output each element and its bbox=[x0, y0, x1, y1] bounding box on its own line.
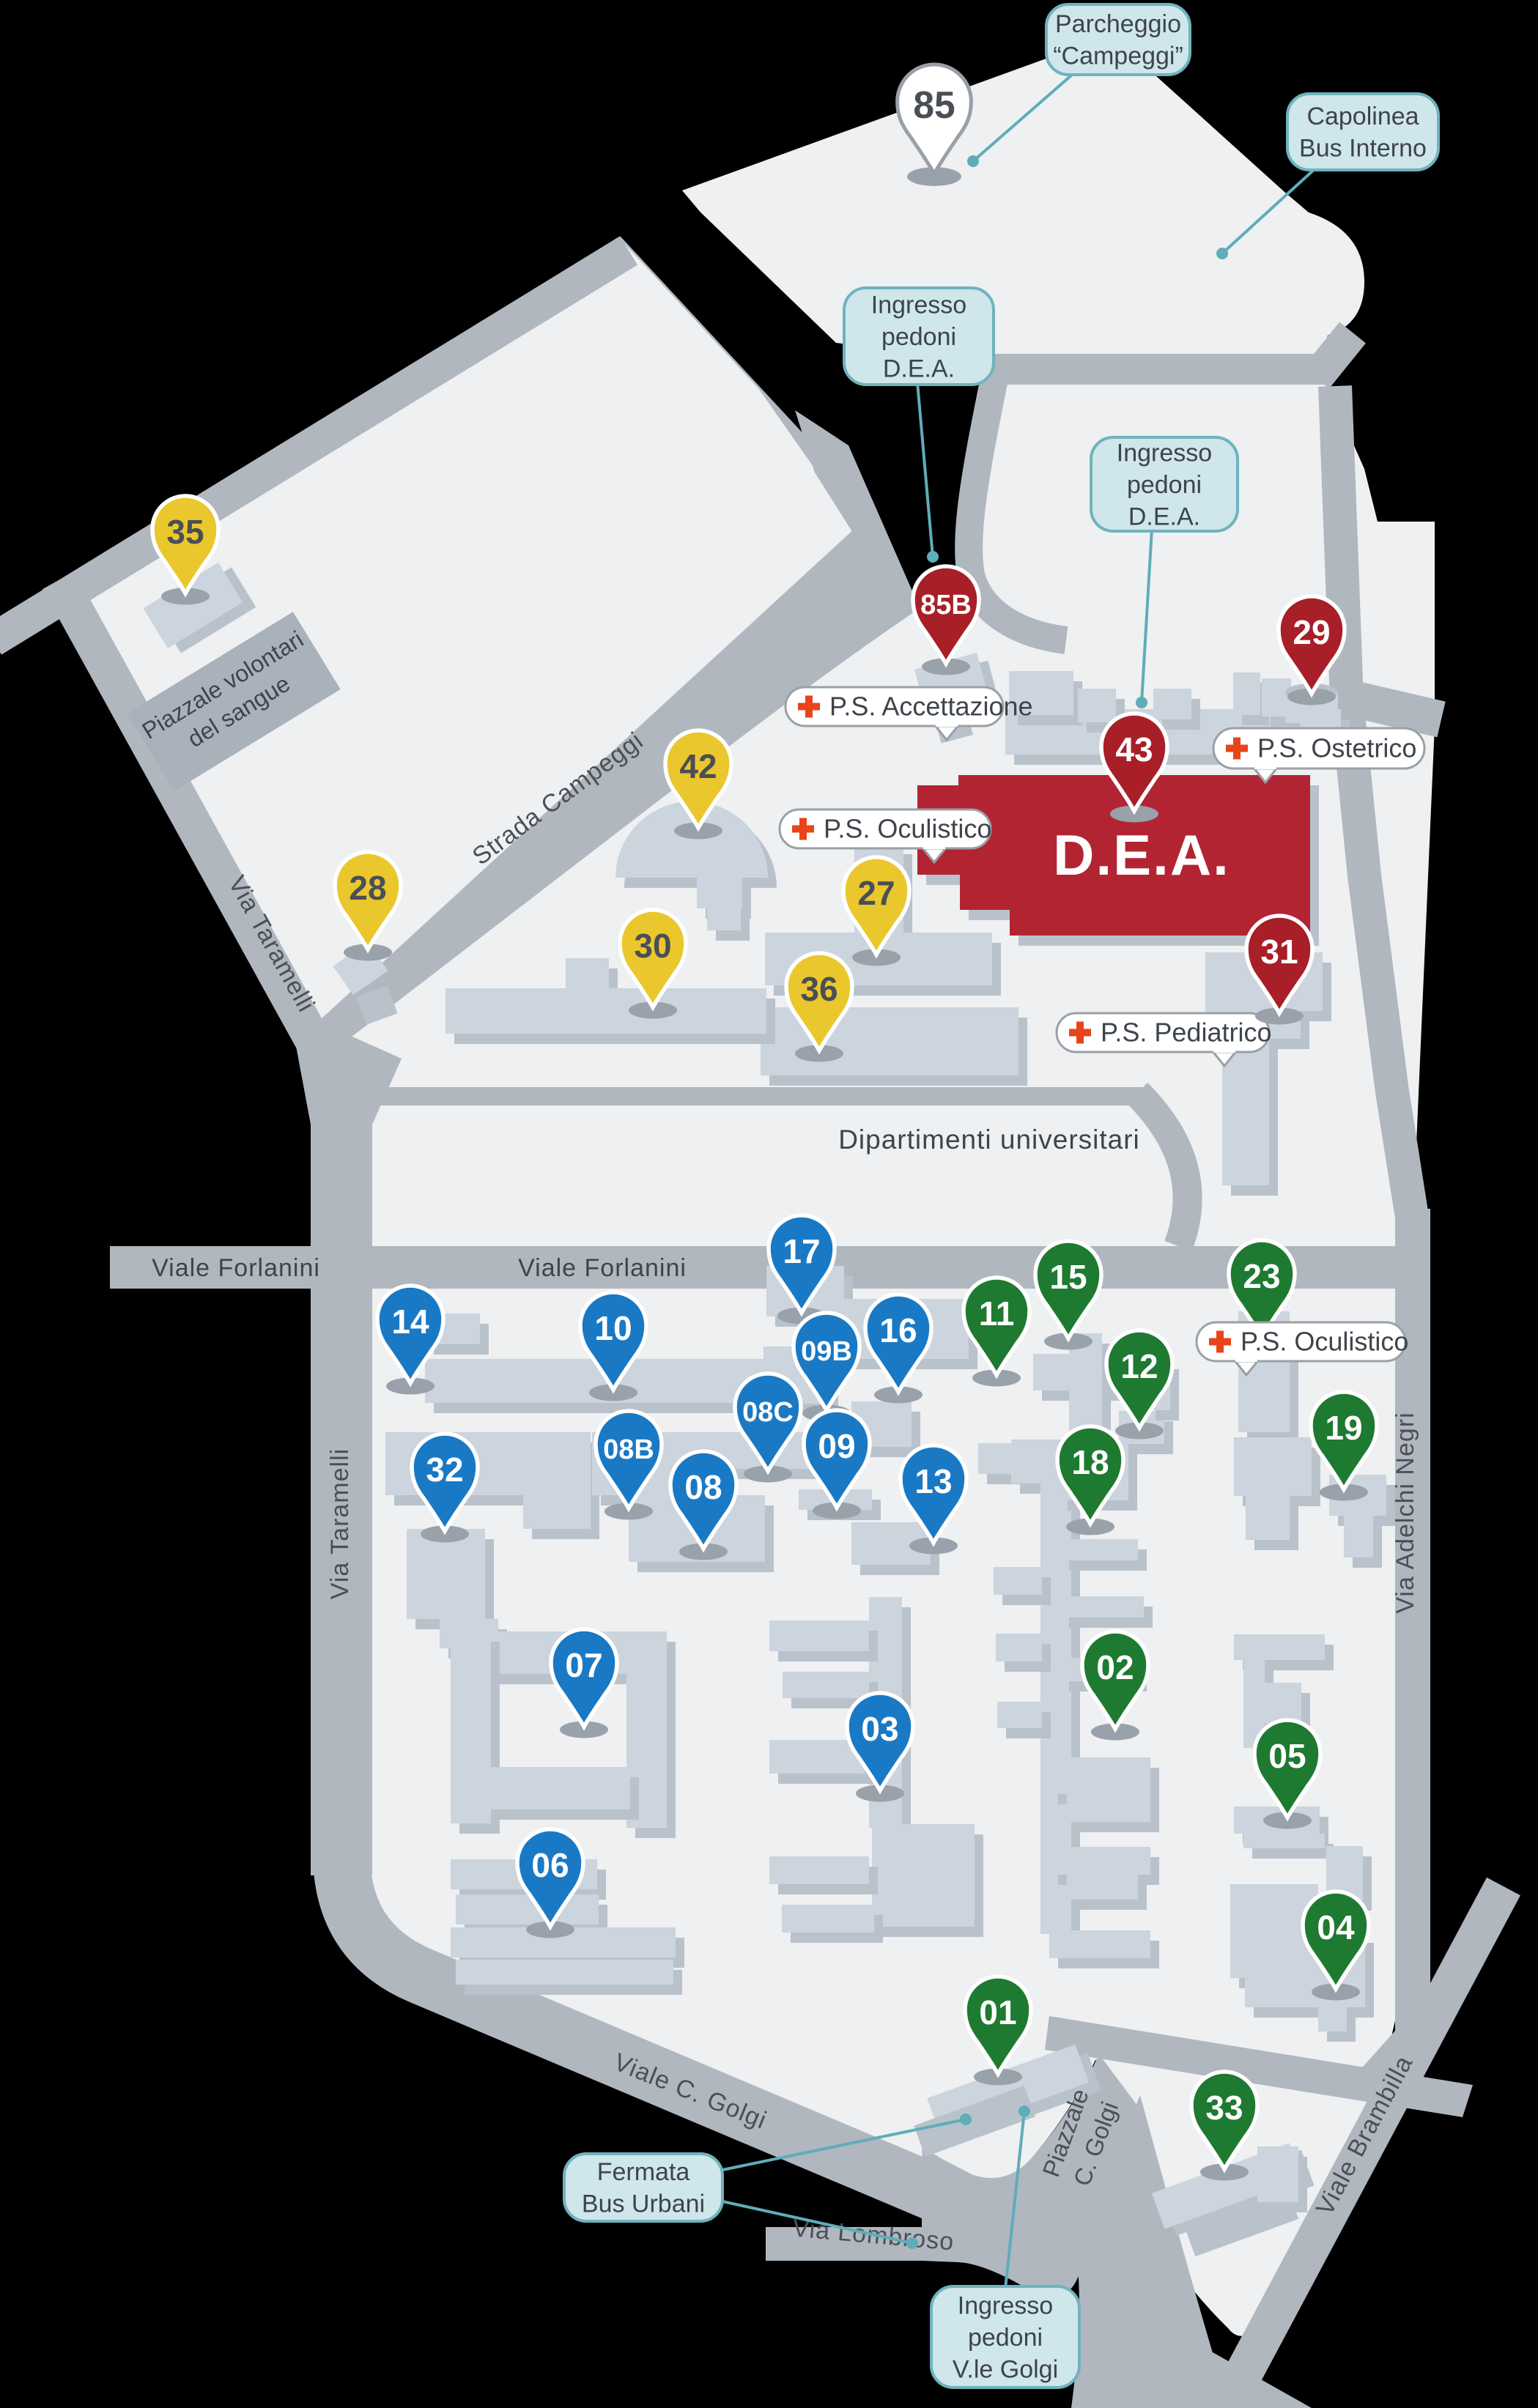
svg-text:42: 42 bbox=[679, 747, 717, 785]
svg-text:Ingresso: Ingresso bbox=[958, 2292, 1053, 2319]
svg-text:Ingresso: Ingresso bbox=[871, 291, 966, 319]
svg-text:30: 30 bbox=[634, 927, 671, 965]
svg-text:V.le Golgi: V.le Golgi bbox=[953, 2355, 1058, 2383]
svg-text:P.S. Oculistico: P.S. Oculistico bbox=[824, 814, 991, 844]
svg-text:P.S. Pediatrico: P.S. Pediatrico bbox=[1101, 1018, 1271, 1048]
svg-text:33: 33 bbox=[1205, 2089, 1243, 2127]
svg-text:12: 12 bbox=[1120, 1347, 1158, 1385]
svg-text:13: 13 bbox=[914, 1462, 952, 1500]
svg-text:08B: 08B bbox=[603, 1434, 654, 1465]
svg-text:32: 32 bbox=[426, 1451, 463, 1489]
svg-text:85B: 85B bbox=[920, 590, 972, 620]
svg-text:18: 18 bbox=[1071, 1443, 1109, 1481]
svg-text:08C: 08C bbox=[742, 1397, 794, 1428]
svg-text:Capolinea: Capolinea bbox=[1306, 103, 1419, 130]
svg-text:P.S. Ostetrico: P.S. Ostetrico bbox=[1257, 733, 1416, 763]
svg-text:Fermata: Fermata bbox=[597, 2158, 690, 2186]
svg-text:31: 31 bbox=[1260, 933, 1298, 971]
svg-text:Parcheggio: Parcheggio bbox=[1055, 10, 1181, 38]
svg-text:29: 29 bbox=[1293, 613, 1330, 651]
svg-text:23: 23 bbox=[1243, 1257, 1280, 1295]
svg-text:10: 10 bbox=[594, 1309, 632, 1347]
svg-text:14: 14 bbox=[391, 1303, 429, 1341]
svg-text:pedoni: pedoni bbox=[881, 323, 956, 351]
svg-text:05: 05 bbox=[1268, 1737, 1306, 1775]
svg-text:36: 36 bbox=[800, 970, 838, 1008]
svg-text:P.S. Accettazione: P.S. Accettazione bbox=[829, 692, 1033, 722]
svg-text:43: 43 bbox=[1115, 730, 1153, 768]
svg-text:04: 04 bbox=[1317, 1908, 1355, 1946]
svg-text:85: 85 bbox=[913, 84, 955, 126]
svg-text:09: 09 bbox=[818, 1427, 855, 1465]
svg-text:Dipartimenti universitari: Dipartimenti universitari bbox=[838, 1125, 1140, 1155]
svg-text:27: 27 bbox=[857, 874, 895, 912]
svg-text:06: 06 bbox=[531, 1846, 569, 1884]
svg-text:17: 17 bbox=[783, 1232, 820, 1270]
svg-text:07: 07 bbox=[565, 1646, 602, 1684]
svg-text:D.E.A.: D.E.A. bbox=[1053, 823, 1230, 887]
svg-text:pedoni: pedoni bbox=[968, 2324, 1043, 2352]
svg-text:D.E.A.: D.E.A. bbox=[883, 355, 955, 382]
svg-text:09B: 09B bbox=[801, 1336, 852, 1367]
svg-text:01: 01 bbox=[979, 1993, 1016, 2031]
svg-text:P.S. Oculistico: P.S. Oculistico bbox=[1241, 1327, 1408, 1357]
svg-text:35: 35 bbox=[166, 513, 204, 551]
svg-text:15: 15 bbox=[1049, 1258, 1087, 1296]
svg-text:11: 11 bbox=[979, 1294, 1015, 1333]
svg-text:16: 16 bbox=[879, 1311, 917, 1349]
svg-text:03: 03 bbox=[861, 1710, 898, 1748]
svg-text:02: 02 bbox=[1096, 1648, 1134, 1686]
svg-text:Bus Interno: Bus Interno bbox=[1299, 135, 1427, 163]
svg-text:28: 28 bbox=[349, 869, 386, 907]
svg-text:Bus Urbani: Bus Urbani bbox=[582, 2190, 705, 2218]
svg-text:Via Taramelli: Via Taramelli bbox=[326, 1448, 354, 1599]
svg-text:pedoni: pedoni bbox=[1127, 471, 1202, 499]
svg-text:Viale Forlanini: Viale Forlanini bbox=[518, 1254, 687, 1282]
svg-text:“Campeggi”: “Campeggi” bbox=[1053, 42, 1183, 70]
svg-text:D.E.A.: D.E.A. bbox=[1128, 503, 1200, 530]
svg-text:Via Adelchi Negri: Via Adelchi Negri bbox=[1391, 1412, 1419, 1613]
svg-text:19: 19 bbox=[1325, 1409, 1362, 1447]
svg-text:08: 08 bbox=[684, 1468, 722, 1506]
svg-text:Viale Forlanini: Viale Forlanini bbox=[152, 1254, 320, 1282]
svg-text:Ingresso: Ingresso bbox=[1117, 439, 1212, 467]
